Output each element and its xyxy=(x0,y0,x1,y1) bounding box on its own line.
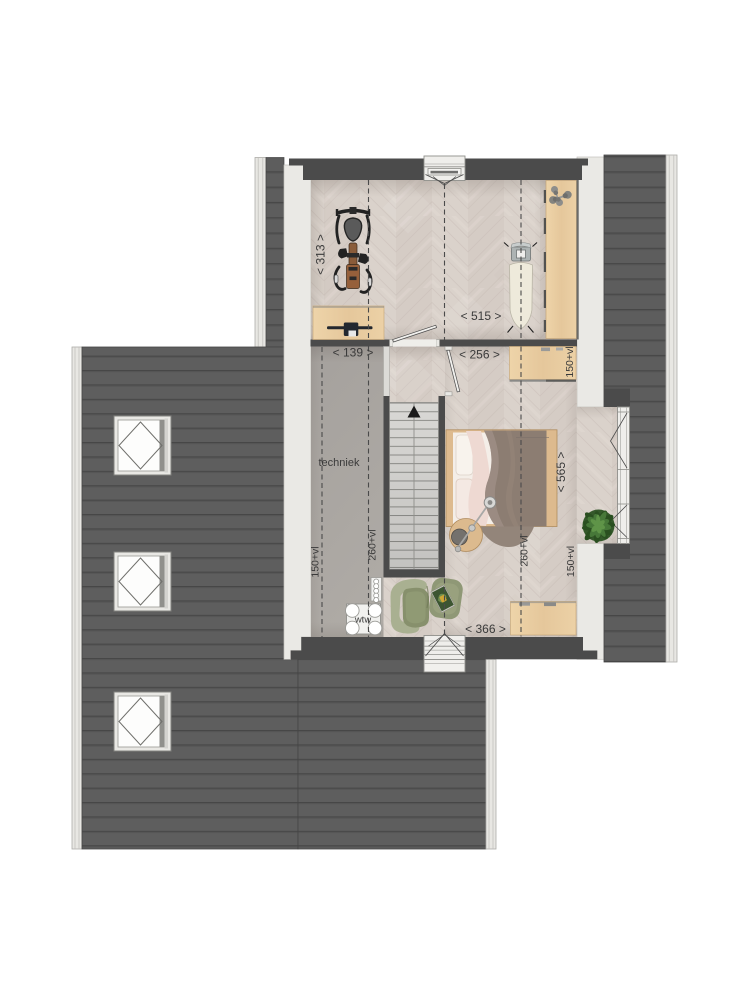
svg-text:< 366 >: < 366 > xyxy=(465,622,506,636)
svg-text:< 515 >: < 515 > xyxy=(461,309,502,323)
svg-text:150+vl: 150+vl xyxy=(564,346,576,377)
svg-text:150+vl: 150+vl xyxy=(565,546,577,577)
svg-text:260+vl: 260+vl xyxy=(367,529,379,560)
svg-text:< 313 >: < 313 > xyxy=(314,234,328,275)
svg-text:< 139 >: < 139 > xyxy=(333,346,374,360)
svg-text:260+vl: 260+vl xyxy=(519,535,531,566)
svg-text:< 565 >: < 565 > xyxy=(554,452,568,493)
svg-text:150+vl: 150+vl xyxy=(310,546,322,577)
svg-text:< 256 >: < 256 > xyxy=(459,348,500,362)
svg-text:techniek: techniek xyxy=(319,457,360,469)
